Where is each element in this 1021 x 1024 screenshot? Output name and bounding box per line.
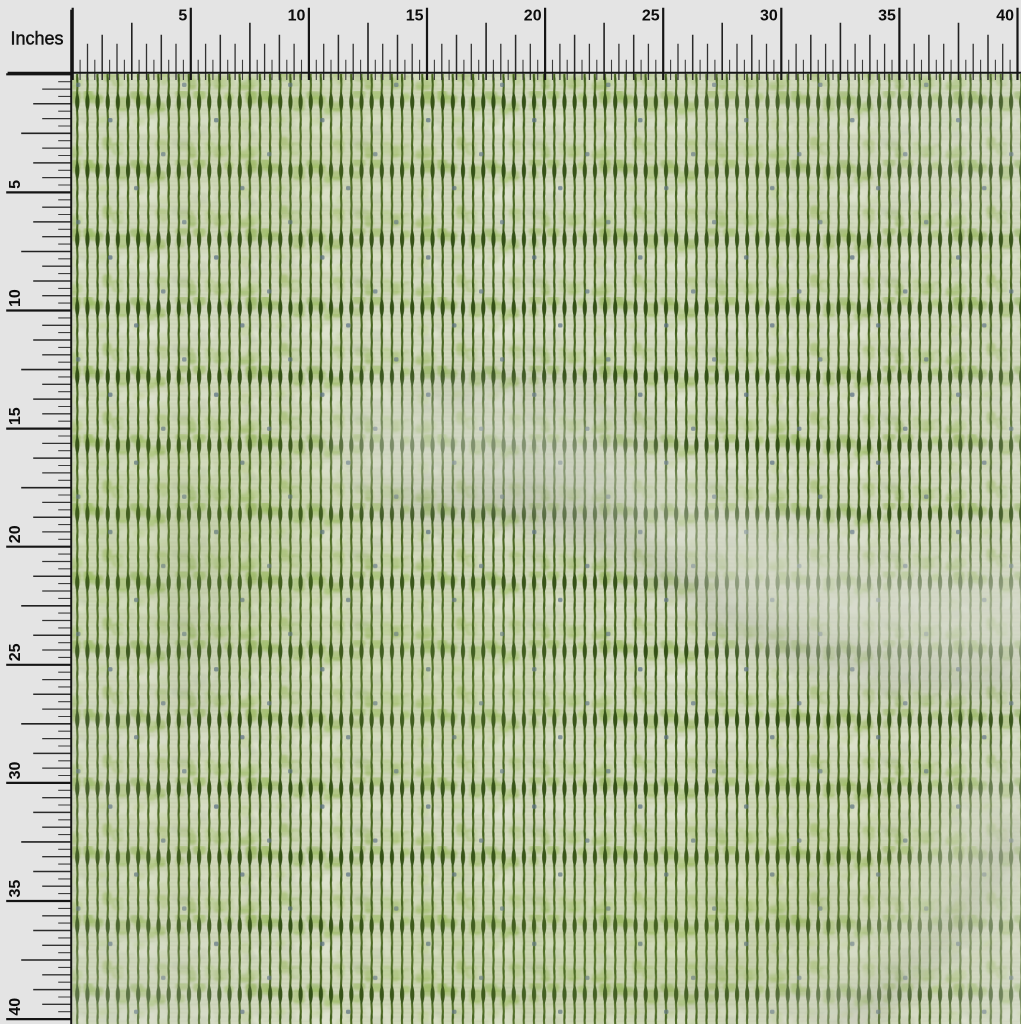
svg-text:5: 5 — [178, 8, 187, 25]
svg-text:20: 20 — [524, 8, 542, 25]
svg-text:15: 15 — [7, 407, 24, 425]
svg-text:Inches: Inches — [11, 29, 64, 49]
svg-text:40: 40 — [996, 8, 1014, 25]
svg-text:30: 30 — [760, 8, 778, 25]
svg-text:25: 25 — [7, 643, 24, 661]
svg-text:5: 5 — [7, 180, 24, 189]
svg-text:15: 15 — [406, 8, 424, 25]
svg-text:35: 35 — [7, 880, 24, 898]
svg-text:30: 30 — [7, 762, 24, 780]
svg-text:10: 10 — [7, 289, 24, 307]
svg-text:20: 20 — [7, 525, 24, 543]
svg-text:10: 10 — [288, 8, 306, 25]
svg-text:25: 25 — [642, 8, 660, 25]
svg-text:40: 40 — [7, 998, 24, 1016]
svg-text:35: 35 — [878, 8, 896, 25]
